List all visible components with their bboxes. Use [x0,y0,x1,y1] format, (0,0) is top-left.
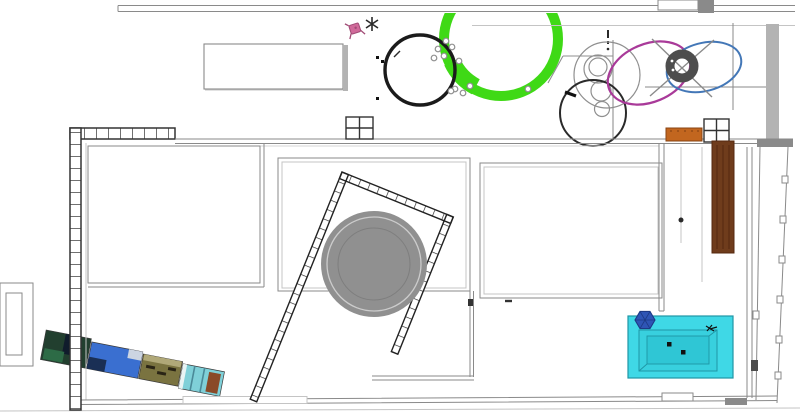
ring-tick-a [376,56,379,59]
west-planter-steps [0,283,33,366]
hatched-west-wall [70,128,81,410]
ring-tick-b [381,60,384,63]
handle-notch [753,311,759,319]
center-axis-dot [607,48,610,51]
window-grid-west [346,117,373,139]
south-wall-gray-block [725,398,747,405]
boundary-end-plate [658,0,698,10]
window-grid-east [704,119,729,142]
south-sliding-door [183,397,307,404]
wood-plank-vertical [712,141,734,253]
pool-floor [647,336,709,364]
hinge-block [751,360,758,371]
donut-dot-a [671,60,674,63]
ring-tick-c [376,97,379,100]
north-wall-end-cap [757,139,793,147]
site-plan-drawing [0,0,800,416]
site-plan-canvas [0,0,800,416]
pool-drain-b [681,350,686,355]
pool-drain-a [667,342,672,347]
table-shadow-edge [343,45,348,91]
dome-fill [321,211,427,317]
boundary-gray-block [698,0,714,13]
south-door-sill [662,393,693,401]
wood-plank-horizontal [666,128,702,141]
blue-umbrella-hexagon [635,311,655,328]
donut-dot-b [672,69,675,72]
door-pivot-dot [679,218,684,223]
door-jamb-mark [468,299,473,306]
hatched-north-wall [70,128,175,139]
swimming-pool [628,311,733,378]
garden-table [204,44,348,91]
east-gray-strip [766,24,779,143]
gray-dome [321,211,427,317]
